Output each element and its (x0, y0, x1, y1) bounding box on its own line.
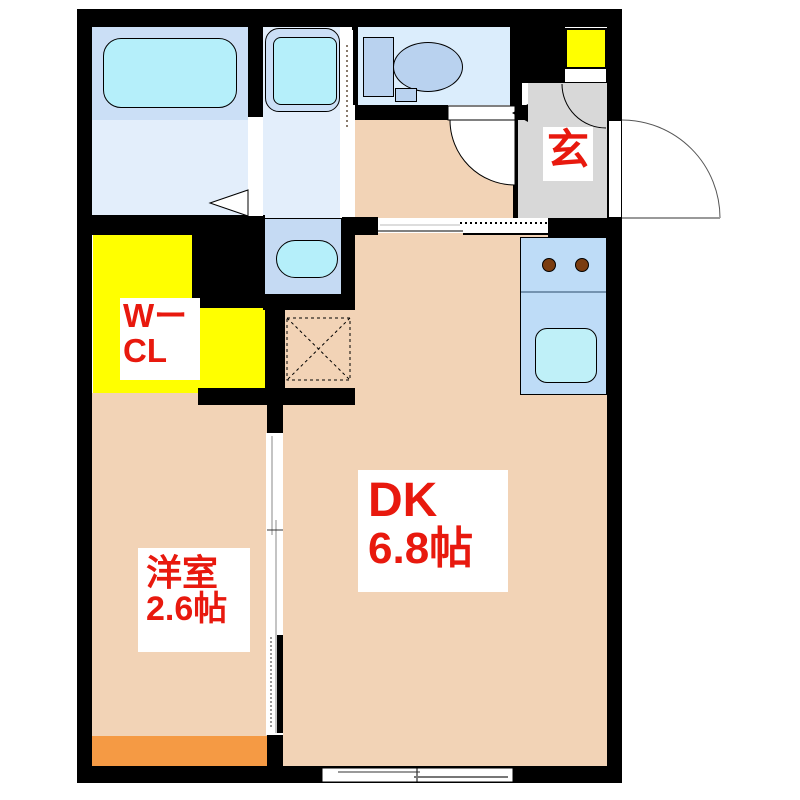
wall-top (77, 9, 622, 27)
wall-entrance-south (548, 218, 607, 237)
washing-machine-pan-inner (273, 37, 337, 105)
entrance-door-leaf (608, 120, 622, 218)
dk-floor-left (283, 405, 355, 766)
entrance-door-arc-icon (622, 120, 720, 218)
bathroom-floor (92, 120, 248, 215)
wall-bath-east (248, 27, 263, 120)
walkin-closet-label-line2: CL (123, 334, 197, 369)
wall-toilet-south (355, 105, 448, 120)
wall-partition-bottom (267, 735, 283, 766)
dk-label-size: 6.8帖 (368, 526, 498, 572)
toilet-bowl-icon (393, 42, 463, 92)
wall-left (77, 9, 92, 783)
western-room-label-size: 2.6帖 (146, 592, 242, 628)
entrance-floor-upper (528, 83, 607, 120)
wall-nook-south (198, 388, 355, 405)
hall-sliding-door (378, 218, 548, 233)
stove-burner-icon (575, 258, 589, 272)
shoe-cabinet-front (558, 68, 607, 83)
entrance-label: 玄 (543, 127, 593, 181)
toilet-door-leaf (448, 106, 515, 120)
washbasin-sink (276, 240, 338, 278)
refrigerator-nook-floor (285, 310, 355, 390)
toilet-tank-icon (363, 37, 394, 97)
wall-bottom (77, 766, 622, 783)
dk-label-name: DK (368, 476, 498, 526)
wall-entrance-west (513, 120, 518, 218)
dk-label: DK 6.8帖 (358, 470, 508, 592)
toilet-handle (395, 88, 417, 102)
kitchen-sink-icon (535, 328, 597, 383)
stove-burner-icon (542, 258, 556, 272)
walkin-closet-label-line1: Wー (123, 299, 197, 334)
wall-entrance-notch (522, 105, 528, 120)
walkin-closet-floor-2 (192, 308, 267, 393)
wall-closet-block (192, 235, 265, 308)
walkin-closet-label: Wー CL (120, 298, 200, 380)
shoe-cabinet-icon (565, 28, 607, 69)
western-room-label: 洋室 2.6帖 (138, 548, 250, 652)
wall-bath-south (92, 215, 265, 235)
partition-sliding-door (266, 433, 283, 735)
wall-entrance-nw (522, 27, 565, 83)
bathroom-door-opening (248, 117, 263, 216)
bathtub-icon (103, 38, 237, 108)
wall-partition-top (267, 405, 283, 435)
western-room-window-strip (92, 736, 267, 766)
wall-toilet-east (510, 27, 522, 120)
washroom-door-opening (341, 30, 353, 217)
floor-plan: 玄 Wー CL DK 6.8帖 洋室 2.6帖 (0, 0, 800, 800)
western-room-label-name: 洋室 (146, 554, 242, 592)
